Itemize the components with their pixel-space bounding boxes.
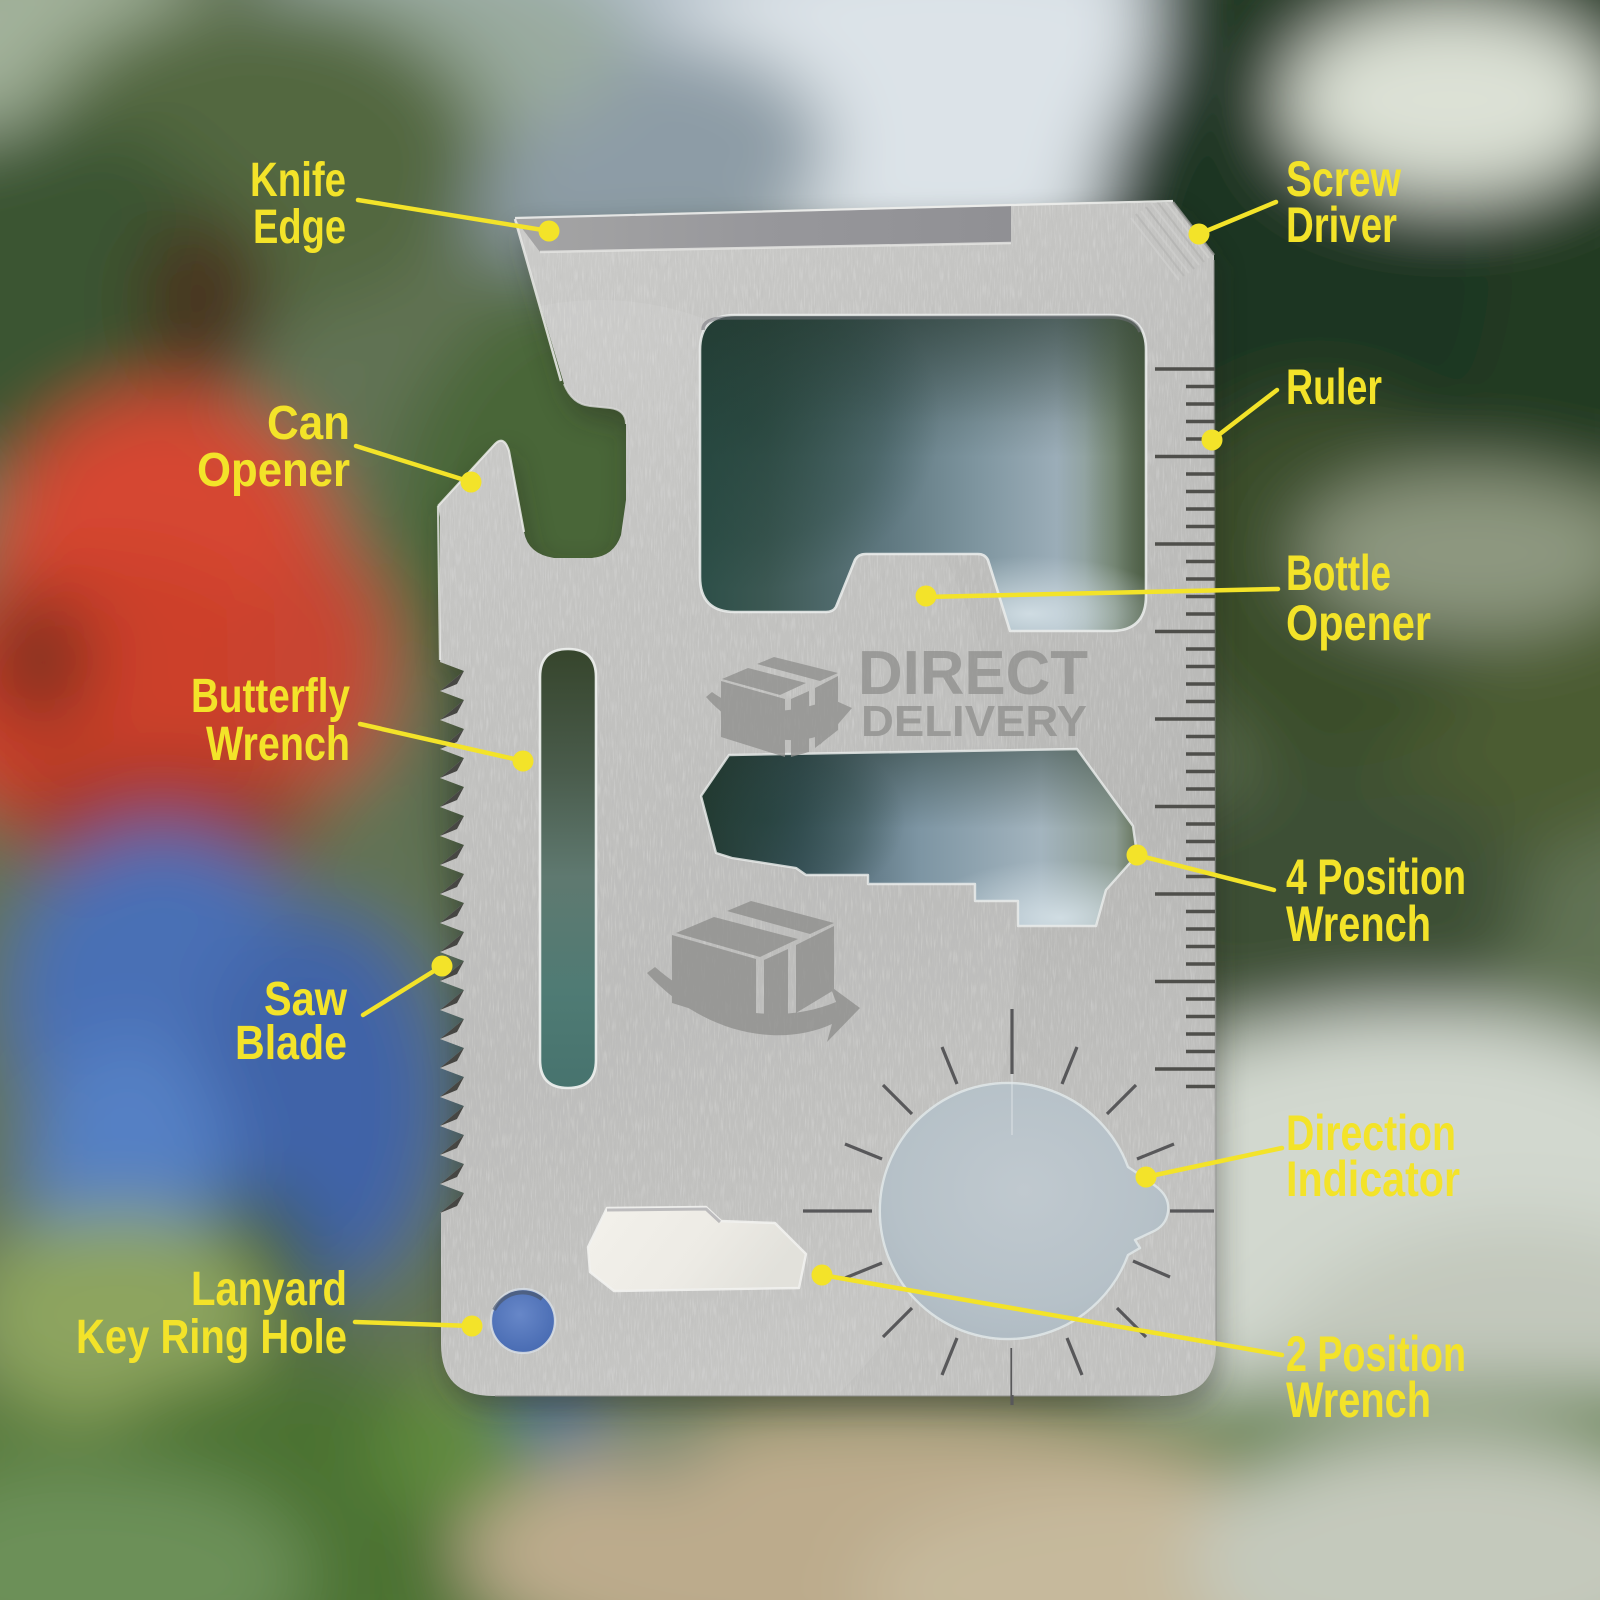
svg-text:Bottle: Bottle — [1286, 545, 1391, 601]
svg-text:Knife: Knife — [250, 154, 346, 207]
svg-text:Edge: Edge — [253, 201, 346, 254]
svg-text:Opener: Opener — [197, 444, 350, 497]
svg-text:Can: Can — [267, 397, 350, 450]
svg-text:Blade: Blade — [235, 1017, 347, 1070]
svg-text:Butterfly: Butterfly — [191, 670, 350, 723]
svg-text:Ruler: Ruler — [1286, 359, 1382, 415]
svg-text:Wrench: Wrench — [206, 718, 350, 771]
svg-text:Key Ring Hole: Key Ring Hole — [76, 1311, 347, 1364]
svg-text:Opener: Opener — [1286, 595, 1431, 651]
svg-text:Indicator: Indicator — [1286, 1151, 1460, 1207]
svg-text:Wrench: Wrench — [1286, 1372, 1431, 1428]
svg-text:Wrench: Wrench — [1286, 896, 1431, 952]
svg-text:Lanyard: Lanyard — [191, 1263, 347, 1316]
svg-text:Driver: Driver — [1286, 197, 1397, 253]
svg-text:DELIVERY: DELIVERY — [861, 697, 1087, 746]
